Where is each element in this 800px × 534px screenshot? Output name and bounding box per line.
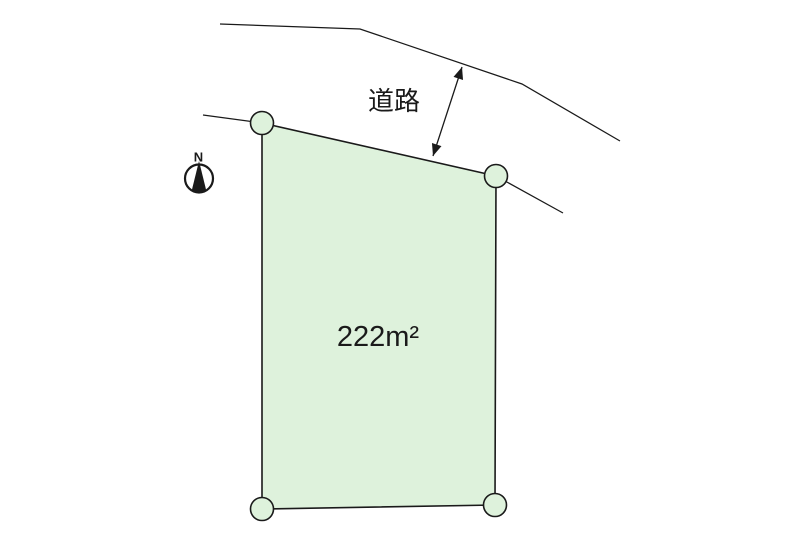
- road-width-arrow: [433, 67, 462, 156]
- corner-marker-bottom-right: [484, 494, 507, 517]
- road-far-edge-line: [220, 24, 620, 141]
- corner-marker-bottom-left: [251, 498, 274, 521]
- north-compass: N: [185, 150, 213, 193]
- site-plan-canvas: 道路 222m² N: [0, 0, 800, 534]
- corner-marker-top-left: [251, 112, 274, 135]
- compass-north-label: N: [194, 150, 203, 165]
- land-parcel-shape: [262, 123, 496, 509]
- parcel-area-label: 222m²: [337, 321, 420, 353]
- site-plan-diagram: 道路 222m² N: [0, 0, 800, 534]
- corner-marker-top-right: [485, 165, 508, 188]
- road-label: 道路: [368, 86, 420, 116]
